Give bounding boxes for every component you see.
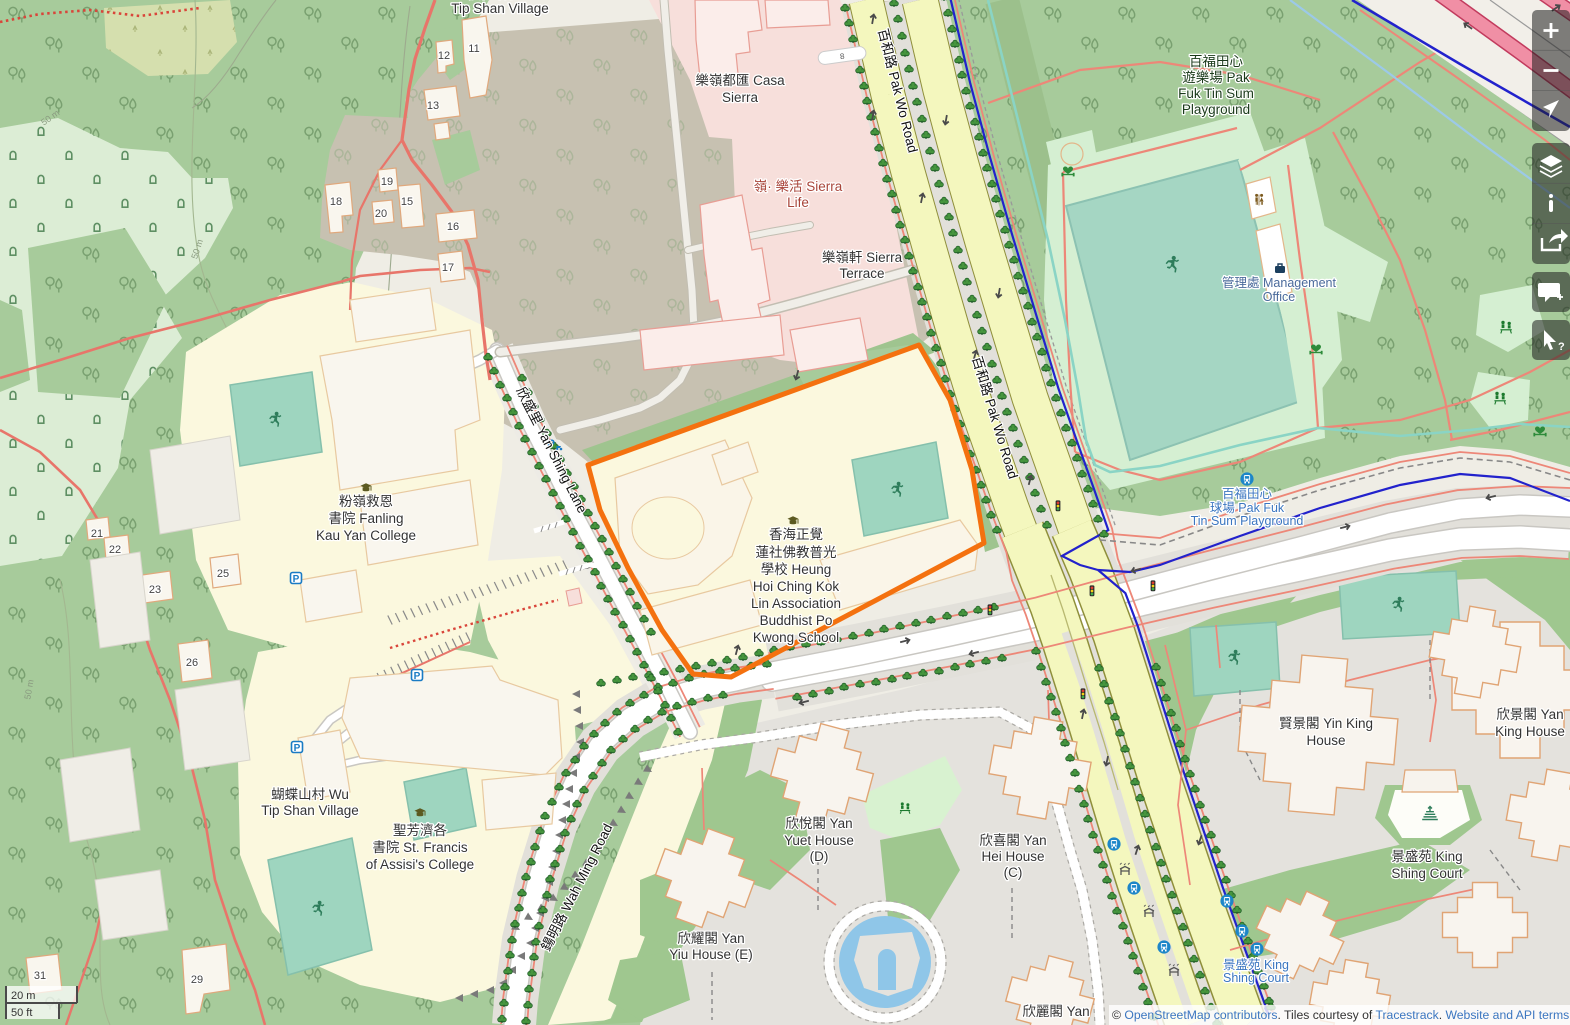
svg-text:(C): (C) bbox=[1004, 865, 1023, 880]
svg-text:樂嶺都匯 Casa: 樂嶺都匯 Casa bbox=[695, 72, 785, 88]
svg-text:50 ft: 50 ft bbox=[11, 1007, 32, 1019]
svg-text:Yiu House (E): Yiu House (E) bbox=[669, 947, 753, 962]
svg-text:嶺· 樂活 Sierra: 嶺· 樂活 Sierra bbox=[754, 178, 843, 194]
svg-text:Tip Shan Village: Tip Shan Village bbox=[451, 1, 549, 16]
svg-text:欣耀閣 Yan: 欣耀閣 Yan bbox=[677, 931, 744, 946]
svg-text:20: 20 bbox=[375, 208, 387, 220]
svg-text:18: 18 bbox=[330, 196, 342, 208]
svg-text:12: 12 bbox=[438, 50, 450, 62]
svg-text:Office: Office bbox=[1263, 290, 1295, 304]
svg-text:of Assisi's College: of Assisi's College bbox=[366, 857, 474, 872]
svg-text:16: 16 bbox=[447, 221, 459, 233]
svg-text:Fuk Tin Sum: Fuk Tin Sum bbox=[1178, 86, 1254, 101]
svg-text:13: 13 bbox=[427, 100, 439, 112]
svg-text:22: 22 bbox=[109, 544, 121, 556]
svg-text:學校 Heung: 學校 Heung bbox=[761, 561, 832, 577]
svg-text:景盛苑 King: 景盛苑 King bbox=[1223, 957, 1289, 972]
svg-text:Tin Sum Playground: Tin Sum Playground bbox=[1191, 514, 1304, 528]
svg-text:百福田心: 百福田心 bbox=[1222, 486, 1273, 501]
svg-text:Life: Life bbox=[787, 195, 809, 210]
svg-text:25: 25 bbox=[217, 568, 229, 580]
svg-text:粉嶺救恩: 粉嶺救恩 bbox=[339, 494, 393, 509]
svg-text:Hei House: Hei House bbox=[981, 849, 1044, 864]
svg-text:15: 15 bbox=[401, 196, 413, 208]
svg-text:欣麗閣 Yan: 欣麗閣 Yan bbox=[1022, 1004, 1089, 1019]
svg-text:蓮社佛教普光: 蓮社佛教普光 bbox=[756, 545, 837, 560]
svg-text:26: 26 bbox=[186, 657, 198, 669]
svg-text:Playground: Playground bbox=[1182, 102, 1250, 117]
svg-text:Shing Court: Shing Court bbox=[1391, 866, 1463, 881]
svg-text:書院 St. Francis: 書院 St. Francis bbox=[372, 840, 468, 855]
svg-text:欣喜閣 Yan: 欣喜閣 Yan bbox=[979, 833, 1046, 848]
svg-text:Lin Association: Lin Association bbox=[751, 596, 841, 611]
svg-text:百福田心: 百福田心 bbox=[1189, 54, 1243, 69]
svg-text:蝴蝶山村 Wu: 蝴蝶山村 Wu bbox=[271, 787, 349, 802]
svg-text:29: 29 bbox=[191, 974, 203, 986]
svg-text:遊樂場 Pak: 遊樂場 Pak bbox=[1182, 69, 1250, 85]
svg-text:21: 21 bbox=[91, 528, 103, 540]
svg-text:Yuet House: Yuet House bbox=[784, 833, 854, 848]
svg-text:Buddhist Po: Buddhist Po bbox=[760, 613, 833, 628]
svg-text:Kwong School: Kwong School bbox=[753, 630, 839, 645]
svg-text:樂嶺軒 Sierra: 樂嶺軒 Sierra bbox=[822, 249, 903, 265]
svg-text:31: 31 bbox=[34, 970, 46, 982]
svg-text:Sierra: Sierra bbox=[722, 90, 759, 105]
svg-text:香海正覺: 香海正覺 bbox=[769, 527, 823, 542]
svg-text:?: ? bbox=[1558, 341, 1565, 353]
svg-text:管理處 Management: 管理處 Management bbox=[1222, 275, 1336, 290]
svg-text:23: 23 bbox=[149, 584, 161, 596]
svg-text:Shing Court: Shing Court bbox=[1223, 971, 1290, 985]
svg-text:書院 Fanling: 書院 Fanling bbox=[328, 511, 403, 526]
svg-text:Tip Shan Village: Tip Shan Village bbox=[261, 803, 359, 818]
svg-text:© OpenStreetMap contributors.: © OpenStreetMap contributors. Tiles cour… bbox=[1112, 1008, 1569, 1022]
svg-text:19: 19 bbox=[381, 176, 393, 188]
svg-text:King House: King House bbox=[1495, 724, 1565, 739]
svg-text:Hoi Ching Kok: Hoi Ching Kok bbox=[753, 579, 840, 594]
svg-text:(D): (D) bbox=[810, 849, 829, 864]
svg-text:欣悅閣 Yan: 欣悅閣 Yan bbox=[785, 816, 852, 831]
svg-text:17: 17 bbox=[442, 262, 454, 274]
svg-text:聖芳濟各: 聖芳濟各 bbox=[393, 823, 447, 838]
svg-text:20 m: 20 m bbox=[11, 990, 35, 1002]
svg-text:欣景閣 Yan: 欣景閣 Yan bbox=[1496, 707, 1563, 722]
svg-text:Kau Yan College: Kau Yan College bbox=[316, 528, 416, 543]
svg-text:景盛苑 King: 景盛苑 King bbox=[1391, 849, 1462, 864]
svg-text:11: 11 bbox=[468, 43, 479, 55]
svg-text:Terrace: Terrace bbox=[839, 266, 884, 281]
svg-text:House: House bbox=[1306, 733, 1345, 748]
svg-text:球場 Pak Fuk: 球場 Pak Fuk bbox=[1210, 501, 1285, 515]
svg-text:賢景閣 Yin King: 賢景閣 Yin King bbox=[1279, 716, 1373, 731]
